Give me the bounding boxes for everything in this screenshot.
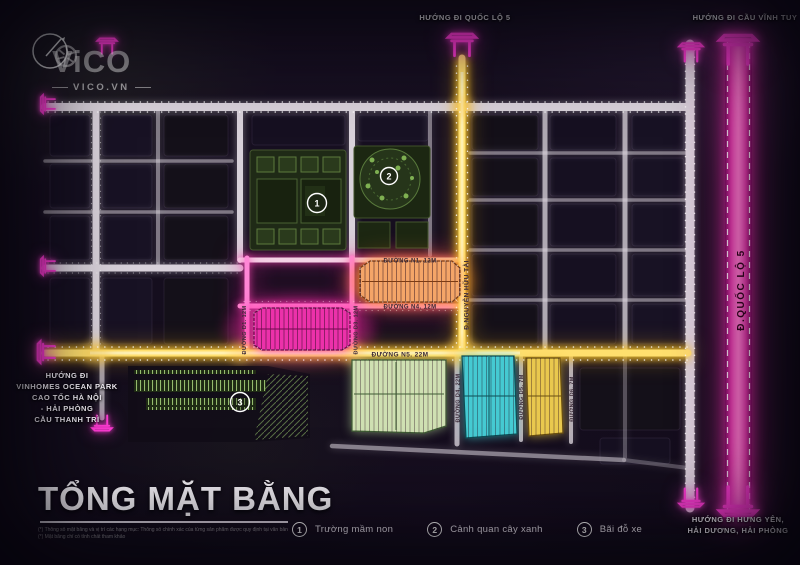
direction-left-line: CAO TỐC HÀ NỘI	[4, 392, 130, 403]
page-title: TỔNG MẶT BẰNG	[38, 480, 333, 518]
direction-bottom-right-line: HẢI DƯƠNG, HẢI PHÒNG	[676, 525, 800, 536]
city-block	[164, 115, 228, 156]
disclaimer-line: (*) Mặt bằng chỉ có tính chất tham khảo	[38, 534, 288, 541]
block-mint	[352, 360, 446, 433]
road-label-d4: ĐƯỜNG D4. 22M	[454, 373, 462, 422]
title-block: TỔNG MẶT BẰNG (*) Thông số mặt bằng và v…	[38, 480, 333, 541]
block-gold	[526, 358, 563, 436]
road-label-d1: ĐƯỜNG D1. 12M	[240, 305, 248, 354]
road-label-n1: ĐƯỜNG N1. 12M	[384, 257, 437, 265]
city-block	[550, 115, 616, 150]
brand-logo: ViCO VICO.VN	[52, 44, 151, 93]
city-block	[580, 368, 680, 430]
city-block	[550, 304, 616, 344]
legend-label: Cảnh quan cây xanh	[450, 524, 543, 535]
city-block	[472, 204, 538, 246]
city-block	[550, 204, 616, 246]
city-block	[632, 115, 684, 150]
legend-item-landscape: 2 Cảnh quan cây xanh	[427, 522, 543, 537]
city-block	[550, 158, 616, 196]
city-block	[102, 164, 152, 208]
disclaimer-line: (*) Thông số mặt bằng và vị trí các hạng…	[38, 527, 288, 534]
direction-left: HƯỚNG ĐI VINHOMES OCEAN PARK CAO TỐC HÀ …	[4, 370, 130, 425]
city-block	[632, 204, 684, 246]
block-magenta	[254, 308, 350, 350]
direction-bottom-right-line: HƯỚNG ĐI HƯNG YÊN,	[676, 514, 800, 525]
brand-domain: VICO.VN	[73, 82, 130, 93]
road-label-d6: ĐƯỜNG D6. 7M	[568, 376, 576, 422]
road-label-n5: ĐƯỜNG N5. 22M	[372, 350, 429, 359]
city-block	[50, 278, 90, 344]
city-block	[164, 278, 228, 344]
block-teal	[462, 356, 517, 438]
city-block	[472, 158, 538, 196]
city-block	[50, 216, 90, 260]
city-block	[252, 115, 345, 145]
road-label-nguyen-huu-tai: Đ.NGUYỄN HỮU TÀI	[462, 260, 471, 330]
marker-1-number: 1	[314, 199, 319, 209]
marker-3-number: 3	[237, 398, 242, 408]
banner-line	[52, 87, 68, 88]
city-block	[550, 254, 616, 296]
city-block	[358, 115, 428, 141]
city-block	[50, 164, 90, 208]
banner-line	[135, 87, 151, 88]
legend-item-school: 1 Trường mầm non	[292, 522, 393, 537]
title-underline	[40, 521, 288, 523]
city-block	[472, 254, 538, 296]
road-label-quoc-lo-5: Đ.QUỐC LỘ 5	[733, 249, 747, 331]
legend-number: 1	[292, 522, 307, 537]
city-block	[50, 115, 90, 156]
master-plan-poster: ĐƯỜNG N1. 12M ĐƯỜNG N4. 12M ĐƯỜNG N5. 22…	[0, 0, 800, 565]
gate-icon	[448, 34, 476, 56]
city-block	[102, 216, 152, 260]
park-block	[354, 146, 430, 248]
city-block	[632, 254, 684, 296]
marker-2-number: 2	[386, 172, 391, 182]
legend-item-parking: 3 Bãi đỗ xe	[577, 522, 642, 537]
city-block	[632, 158, 684, 196]
direction-left-line: HƯỚNG ĐI	[4, 370, 130, 381]
legend-label: Trường mầm non	[315, 524, 393, 535]
road-label-n4: ĐƯỜNG N4. 12M	[384, 303, 437, 311]
direction-top-center: HƯỚNG ĐI QUỐC LỘ 5	[390, 12, 540, 23]
aperture-icon	[54, 44, 78, 68]
legend-label: Bãi đỗ xe	[600, 524, 642, 535]
direction-bottom-right: HƯỚNG ĐI HƯNG YÊN, HẢI DƯƠNG, HẢI PHÒNG	[676, 514, 800, 536]
city-block	[632, 304, 684, 344]
road-label-d5: ĐƯỜNG D5. 7M	[517, 374, 525, 420]
direction-left-line: CẦU THANH TRÌ	[4, 414, 130, 425]
direction-top-right: HƯỚNG ĐI CẦU VĨNH TUY	[665, 12, 800, 23]
city-block	[102, 278, 152, 344]
road-label-d3: ĐƯỜNG D3. 12M	[352, 305, 360, 354]
city-block	[472, 115, 538, 150]
city-block	[102, 115, 152, 156]
city-block	[472, 304, 538, 344]
direction-left-line: VINHOMES OCEAN PARK	[4, 381, 130, 392]
city-block	[164, 216, 228, 260]
legend-number: 3	[577, 522, 592, 537]
legend: 1 Trường mầm non 2 Cảnh quan cây xanh 3 …	[292, 522, 642, 537]
block-orange	[360, 261, 460, 302]
direction-left-line: - HẢI PHÒNG	[4, 403, 130, 414]
brand-domain-banner: VICO.VN	[52, 82, 151, 93]
legend-number: 2	[427, 522, 442, 537]
school-block	[250, 150, 346, 250]
city-block	[164, 164, 228, 208]
parking-block	[128, 366, 310, 442]
